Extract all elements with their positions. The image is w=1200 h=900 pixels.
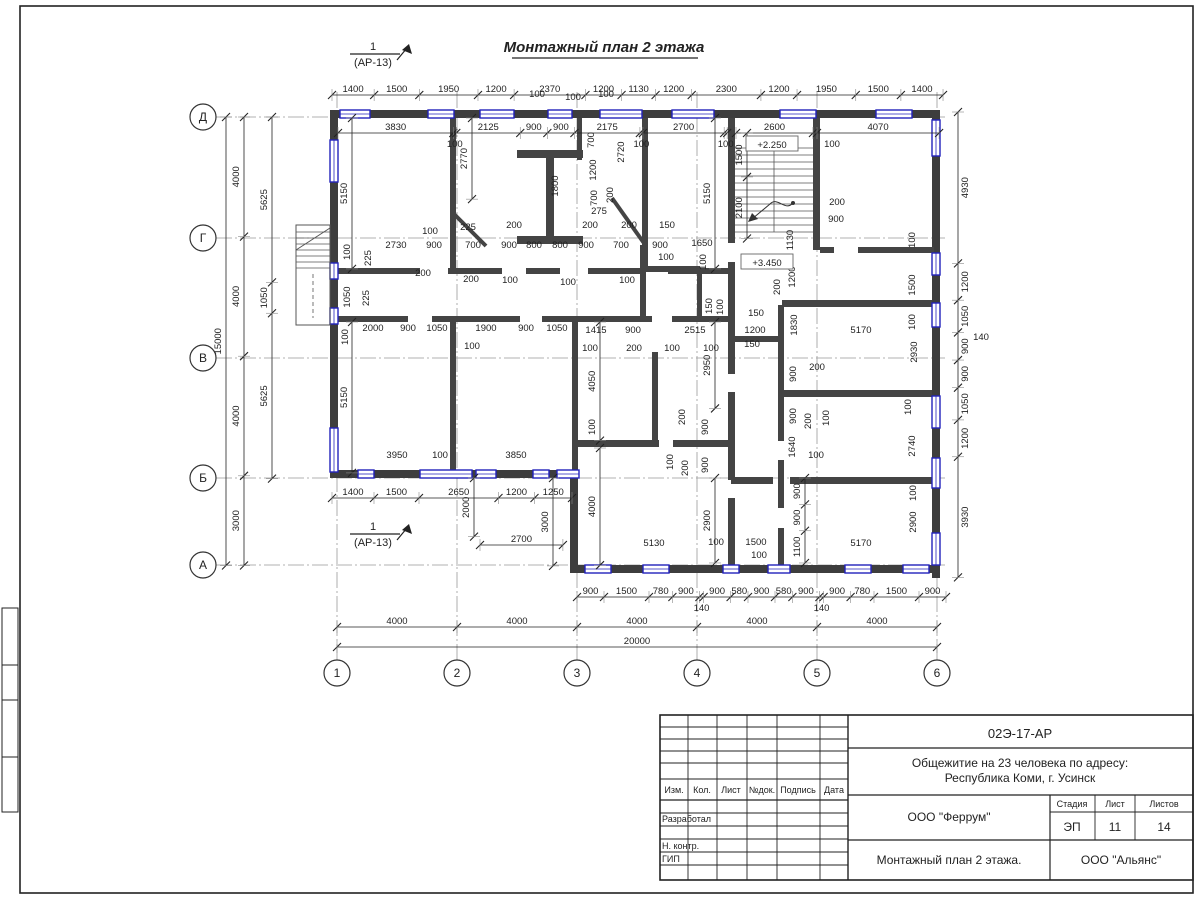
wall-partition	[652, 352, 658, 442]
wall-partition	[517, 150, 583, 158]
dim-text: 900	[678, 586, 694, 597]
dim-text: 2720	[616, 141, 627, 162]
dim-text: 1200	[960, 428, 971, 449]
dim-text: 100	[903, 399, 914, 415]
dim-text: 900	[700, 457, 711, 473]
dim-text: 900	[583, 586, 599, 597]
dim-text: 1950	[438, 84, 459, 95]
dim-text: 2600	[764, 122, 785, 133]
dim-text: 1050	[960, 306, 971, 327]
dim-text: 2515	[684, 325, 705, 336]
dim-text: 5625	[259, 189, 270, 210]
dim-text: 1050	[546, 323, 567, 334]
wall-partition	[728, 392, 735, 480]
dim-text: 100	[907, 314, 918, 330]
row-label-razrabotal: Разработал	[662, 814, 711, 824]
dim-text: 800	[552, 240, 568, 251]
dim-text: 200	[677, 409, 688, 425]
dim-text: 2770	[459, 148, 470, 169]
dim-text: 1500	[616, 586, 637, 597]
dim-text: 700	[613, 240, 629, 251]
dim-text: 1500	[386, 487, 407, 498]
dim-text: 100	[464, 341, 480, 352]
dim-text: 100	[821, 410, 832, 426]
section-number: 1	[370, 521, 376, 533]
sheet-subtitle: Монтажный план 2 этажа.	[877, 853, 1022, 867]
dim-text: 2700	[673, 122, 694, 133]
wall-partition	[778, 478, 784, 508]
dim-text: 2700	[511, 534, 532, 545]
dim-text: 2900	[908, 511, 919, 532]
section-marker-bottom: 1 (АР-13)	[350, 521, 412, 549]
dim-text: 100	[598, 89, 614, 100]
dim-text: 3950	[386, 450, 407, 461]
dim-text: 2000	[461, 497, 472, 518]
wall-partition	[640, 245, 646, 322]
dim-text: 900	[625, 325, 641, 336]
wall-partition	[546, 158, 554, 238]
dim-text: 100	[824, 139, 840, 150]
dim-text: 4000	[746, 616, 767, 627]
dim-text: 200	[626, 343, 642, 354]
dim-text: 5150	[339, 387, 350, 408]
dim-text: 200	[829, 197, 845, 208]
dim-text: 900	[400, 323, 416, 334]
dim-text: 1640	[787, 436, 798, 457]
wall-partition	[728, 498, 735, 565]
wall-partition	[432, 316, 520, 322]
wall-partition	[542, 316, 652, 322]
dim-text: 1200	[960, 271, 971, 292]
dim-text: 100	[751, 550, 767, 561]
axis-letter: А	[199, 558, 207, 572]
dim-text: 100	[565, 92, 581, 103]
row-label-nkontr: Н. контр.	[662, 841, 699, 851]
dim-text: 100	[715, 299, 726, 315]
dim-text: 100	[718, 139, 734, 150]
dim-text: 225	[460, 222, 476, 233]
axis-letter: Г	[200, 231, 207, 245]
dim-text: 4000	[506, 616, 527, 627]
dim-text: 100	[658, 252, 674, 263]
dim-text: 900	[828, 214, 844, 225]
dim-text: 900	[960, 366, 971, 382]
dim-text: 4050	[587, 371, 598, 392]
wall-partition	[575, 440, 659, 447]
dim-text: 1200	[506, 487, 527, 498]
dim-text: 780	[854, 586, 870, 597]
dim-text: 900	[501, 240, 517, 251]
dim-text: 900	[788, 366, 799, 382]
dim-text: 1500	[907, 274, 918, 295]
dim-text: 140	[973, 332, 989, 343]
dim-text: 1400	[342, 487, 363, 498]
dim-text: 2900	[702, 510, 713, 531]
dim-text: 2100	[734, 197, 745, 218]
dim-text: 100	[560, 277, 576, 288]
stage-label: Стадия	[1057, 799, 1088, 809]
dim-text: 700	[586, 132, 597, 148]
section-marker-top: 1 (АР-13)	[350, 41, 412, 69]
wall	[573, 565, 940, 573]
dim-text: 1500	[734, 144, 745, 165]
dim-text: 200	[621, 220, 637, 231]
wall-partition	[640, 266, 700, 272]
dim-text: 200	[809, 362, 825, 373]
dim-text: 100	[619, 275, 635, 286]
dim-text: 225	[361, 290, 372, 306]
dim-text: 1400	[342, 84, 363, 95]
dim-text: 1050	[960, 393, 971, 414]
wall-partition	[450, 322, 456, 471]
stair-direction-arrow	[748, 213, 758, 222]
col-header-izm: Изм.	[664, 785, 683, 795]
dim-text: 1200	[768, 84, 789, 95]
dim-text: 200	[803, 413, 814, 429]
wall-partition	[697, 268, 702, 316]
wall-partition	[526, 268, 560, 274]
dim-text: 1050	[426, 323, 447, 334]
floor-plan-canvas: Монтажный план 2 этажа 1 (АР-13) 1 (АР-1…	[0, 0, 1200, 900]
dim-text: 4000	[231, 286, 242, 307]
dim-text: 100	[633, 139, 649, 150]
dim-text: 900	[526, 122, 542, 133]
dim-text: 100	[587, 419, 598, 435]
dim-text: 100	[908, 485, 919, 501]
dim-text: 1130	[628, 84, 648, 95]
dim-text: 5130	[643, 538, 664, 549]
dim-text: 900	[829, 586, 845, 597]
axis-letter: Д	[199, 110, 207, 124]
dim-text: 15000	[213, 328, 224, 354]
axis-number: 3	[574, 666, 581, 680]
dim-text: 100	[422, 226, 438, 237]
dim-text: 1500	[886, 586, 907, 597]
dim-text: 3830	[385, 122, 406, 133]
dim-text: 100	[432, 450, 448, 461]
sheet-value: 11	[1109, 820, 1122, 834]
dim-text: 1415	[585, 325, 606, 336]
document-code: 02Э-17-АР	[988, 726, 1052, 741]
design-company: ООО "Феррум"	[908, 810, 991, 824]
dim-text: 100	[582, 343, 598, 354]
axis-number: 2	[454, 666, 461, 680]
dim-text: 5170	[850, 538, 871, 549]
dim-text: 3000	[231, 510, 242, 531]
contractor-company: ООО "Альянс"	[1081, 853, 1161, 867]
wall-partition	[820, 247, 834, 253]
dim-text: 900	[709, 586, 725, 597]
dim-text: 1050	[342, 286, 353, 307]
dim-text: 5170	[850, 325, 871, 336]
dim-text: 900	[652, 240, 668, 251]
dim-text: 900	[925, 586, 941, 597]
dim-text: 2300	[716, 84, 737, 95]
col-header-data: Дата	[824, 785, 844, 795]
dim-text: 100	[665, 454, 676, 470]
dim-text: 900	[578, 240, 594, 251]
dim-text: 700	[589, 190, 600, 206]
dim-text: 1200	[485, 84, 506, 95]
dim-text: 100	[529, 89, 545, 100]
dim-text: 100	[664, 343, 680, 354]
dim-text: 1050	[259, 287, 270, 308]
sheets-label: Листов	[1149, 799, 1178, 809]
dim-text: 900	[792, 510, 803, 526]
dim-text: 100	[808, 450, 824, 461]
dim-text: 1900	[475, 323, 496, 334]
wall-partition	[338, 316, 408, 322]
dim-text: 200	[605, 187, 616, 203]
dim-text: 4000	[386, 616, 407, 627]
dim-text: 900	[553, 122, 569, 133]
dim-text: 225	[363, 250, 374, 266]
sheet-label: Лист	[1105, 799, 1125, 809]
elevation-value: +3.450	[752, 258, 781, 269]
dim-text: 3000	[540, 511, 551, 532]
axis-letter: В	[199, 351, 207, 365]
dim-text: 20000	[624, 636, 650, 647]
dim-text: 800	[526, 240, 542, 251]
dim-text: 4000	[626, 616, 647, 627]
dim-text: 900	[960, 338, 971, 354]
wall-partition	[858, 247, 934, 253]
dim-text: 100	[703, 343, 719, 354]
dim-text: 1500	[745, 537, 766, 548]
dim-text: 4000	[866, 616, 887, 627]
wall-partition	[778, 390, 932, 397]
drawing-sheet: Монтажный план 2 этажа 1 (АР-13) 1 (АР-1…	[0, 0, 1200, 900]
dim-text: 1500	[386, 84, 407, 95]
dim-text: 900	[798, 586, 814, 597]
col-header-doc: №док.	[749, 785, 775, 795]
dim-text: 150	[659, 220, 675, 231]
dim-text: 2125	[478, 122, 499, 133]
dim-text: 100	[342, 244, 353, 260]
dim-text: 900	[792, 483, 803, 499]
axis-number: 1	[334, 666, 341, 680]
dim-text: 5150	[339, 183, 350, 204]
dim-text: 580	[731, 586, 747, 597]
dim-text: 200	[772, 279, 783, 295]
dim-text: 4070	[867, 122, 888, 133]
dim-text: 900	[754, 586, 770, 597]
object-name-line2: Республика Коми, г. Усинск	[945, 771, 1096, 785]
dim-text: 200	[463, 274, 479, 285]
wall	[932, 110, 940, 578]
dim-text: 1130	[785, 230, 796, 250]
wall	[570, 470, 578, 573]
dim-text: 1650	[691, 238, 712, 249]
wall-partition	[728, 322, 735, 374]
dim-text: 900	[788, 408, 799, 424]
dim-text: 1400	[911, 84, 932, 95]
dim-text: 5625	[259, 385, 270, 406]
dim-text: 140	[694, 603, 710, 614]
dim-text: 140	[814, 603, 830, 614]
drawing-title: Монтажный план 2 этажа	[504, 39, 705, 58]
dim-text: 580	[776, 586, 792, 597]
dim-text: 3850	[505, 450, 526, 461]
section-sheet-ref: (АР-13)	[354, 537, 392, 549]
wall-partition	[728, 118, 735, 243]
col-header-kol: Кол.	[693, 785, 711, 795]
elevation-value: +2.250	[757, 140, 786, 151]
dim-text: 2730	[385, 240, 406, 251]
wall-partition	[672, 316, 732, 322]
dim-text: 780	[653, 586, 669, 597]
object-name-line1: Общежитие на 23 человека по адресу:	[912, 756, 1128, 770]
dim-text: 2650	[448, 487, 469, 498]
dim-text: 5150	[702, 183, 713, 204]
row-label-gip: ГИП	[662, 854, 680, 864]
dim-text: 1200	[588, 159, 599, 180]
section-number: 1	[370, 41, 376, 53]
dim-text: 1200	[787, 266, 798, 287]
dim-text: 100	[708, 537, 724, 548]
wall-partition	[588, 268, 642, 274]
title-block: 02Э-17-АР Общежитие на 23 человека по ад…	[660, 715, 1193, 880]
dim-text: 100	[907, 232, 918, 248]
wall-partition	[778, 305, 784, 397]
stage-value: ЭП	[1063, 820, 1080, 834]
dim-text: 2950	[702, 355, 713, 376]
dim-text: 1500	[868, 84, 889, 95]
wall-partition	[673, 440, 731, 447]
wall-partition	[778, 460, 784, 478]
dim-text: 1800	[550, 175, 561, 196]
dim-text: 200	[680, 460, 691, 476]
dim-text: 4930	[960, 177, 971, 198]
wall-partition	[778, 397, 784, 441]
axis-number: 4	[694, 666, 701, 680]
dim-text: 900	[700, 419, 711, 435]
dim-text: 4000	[231, 166, 242, 187]
axis-number: 5	[814, 666, 821, 680]
dim-text: 200	[415, 268, 431, 279]
dim-text: 150	[744, 339, 760, 350]
wall-partition	[778, 528, 784, 565]
dim-text: 2740	[907, 435, 918, 456]
section-sheet-ref: (АР-13)	[354, 57, 392, 69]
dim-text: 1200	[744, 325, 765, 336]
axis-letter: Б	[199, 471, 207, 485]
dim-text: 3930	[960, 507, 971, 528]
dim-text: 150	[704, 298, 715, 314]
sheets-value: 14	[1157, 820, 1171, 834]
dim-text: 275	[591, 206, 607, 217]
dim-text: 900	[518, 323, 534, 334]
dim-text: 150	[748, 308, 764, 319]
dim-text: 700	[465, 240, 481, 251]
dim-text: 1100	[792, 537, 803, 557]
dim-text: 200	[506, 220, 522, 231]
dim-text: 100	[340, 329, 351, 345]
dim-text: 1200	[663, 84, 684, 95]
dim-text: 1950	[816, 84, 837, 95]
dim-text: 100	[698, 254, 709, 270]
dim-text: 2175	[597, 122, 618, 133]
wall-partition	[731, 477, 773, 484]
dim-text: 2930	[909, 341, 920, 362]
col-header-podpis: Подпись	[780, 785, 816, 795]
page-title: Монтажный план 2 этажа	[504, 39, 705, 56]
axis-number: 6	[934, 666, 941, 680]
dim-text: 200	[582, 220, 598, 231]
dim-text: 1830	[789, 314, 800, 335]
dim-text: 100	[502, 275, 518, 286]
dim-text: 2000	[362, 323, 383, 334]
wall-partition	[813, 118, 820, 250]
dim-text: 4000	[231, 405, 242, 426]
wall-partition	[782, 300, 932, 307]
wall-partition	[572, 322, 578, 470]
wall-partition	[790, 477, 932, 484]
dim-text: 900	[426, 240, 442, 251]
dim-text: 4000	[587, 496, 598, 517]
wall-partition	[577, 118, 582, 160]
col-header-list: Лист	[721, 785, 741, 795]
